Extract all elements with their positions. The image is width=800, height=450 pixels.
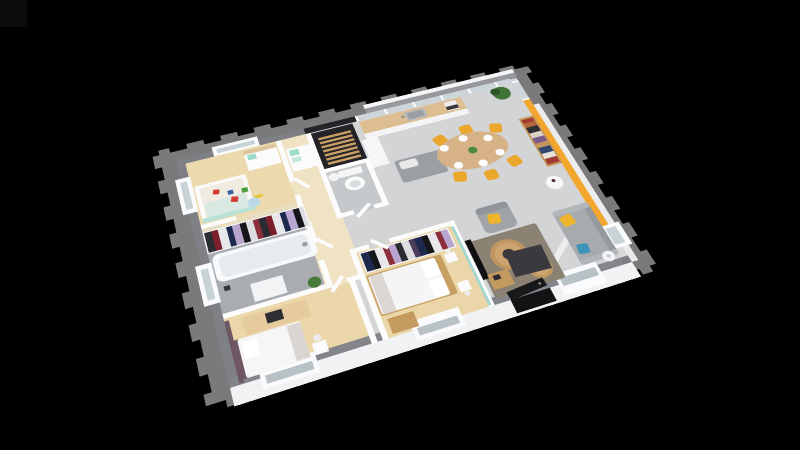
dining-chair-4: [453, 171, 468, 182]
floor-plan-render-canvas: [0, 0, 800, 450]
armchair-pillow: [487, 213, 502, 224]
toy-1: [231, 197, 239, 202]
crib-toy-red: [213, 189, 220, 194]
floor-plan-3d: [176, 77, 632, 388]
corner-artifact: [0, 0, 27, 27]
